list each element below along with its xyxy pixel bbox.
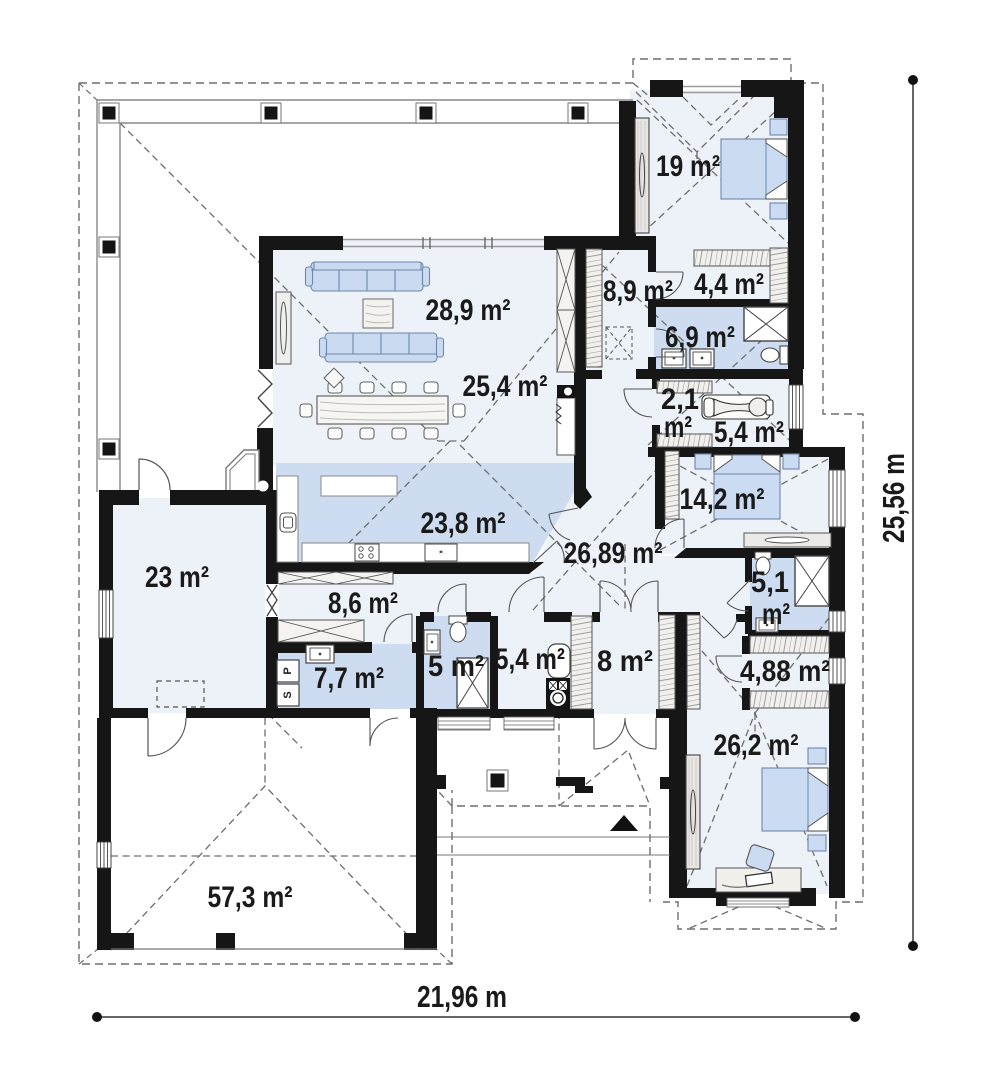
svg-text:25,56 m: 25,56 m	[876, 453, 911, 543]
svg-text:6,9 m²: 6,9 m²	[665, 321, 735, 354]
svg-text:P: P	[282, 667, 294, 674]
svg-text:5,4 m²: 5,4 m²	[714, 416, 784, 449]
svg-text:23 m²: 23 m²	[145, 561, 209, 594]
svg-text:19 m²: 19 m²	[656, 150, 720, 183]
svg-text:57,3 m²: 57,3 m²	[208, 881, 293, 914]
svg-text:7,7 m²: 7,7 m²	[314, 662, 384, 695]
svg-text:8,6 m²: 8,6 m²	[328, 587, 398, 620]
svg-text:8,9 m²: 8,9 m²	[603, 275, 673, 308]
svg-text:S: S	[282, 691, 294, 698]
svg-text:4,4 m²: 4,4 m²	[694, 268, 764, 301]
svg-text:m²: m²	[664, 411, 692, 444]
svg-text:23,8 m²: 23,8 m²	[421, 507, 506, 540]
svg-text:5 m²: 5 m²	[428, 650, 484, 683]
svg-text:21,96 m: 21,96 m	[417, 979, 507, 1014]
svg-text:26,2 m²: 26,2 m²	[714, 729, 799, 762]
svg-text:14,2 m²: 14,2 m²	[680, 483, 765, 516]
svg-text:4,88 m²: 4,88 m²	[740, 655, 830, 688]
svg-text:28,9 m²: 28,9 m²	[426, 294, 511, 327]
svg-text:26,89 m²: 26,89 m²	[564, 537, 663, 570]
svg-text:25,4 m²: 25,4 m²	[463, 370, 548, 403]
svg-text:8 m²: 8 m²	[597, 645, 653, 678]
svg-text:5,4 m²: 5,4 m²	[495, 643, 565, 676]
svg-text:5,1: 5,1	[751, 566, 789, 599]
svg-text:m²: m²	[762, 598, 790, 631]
